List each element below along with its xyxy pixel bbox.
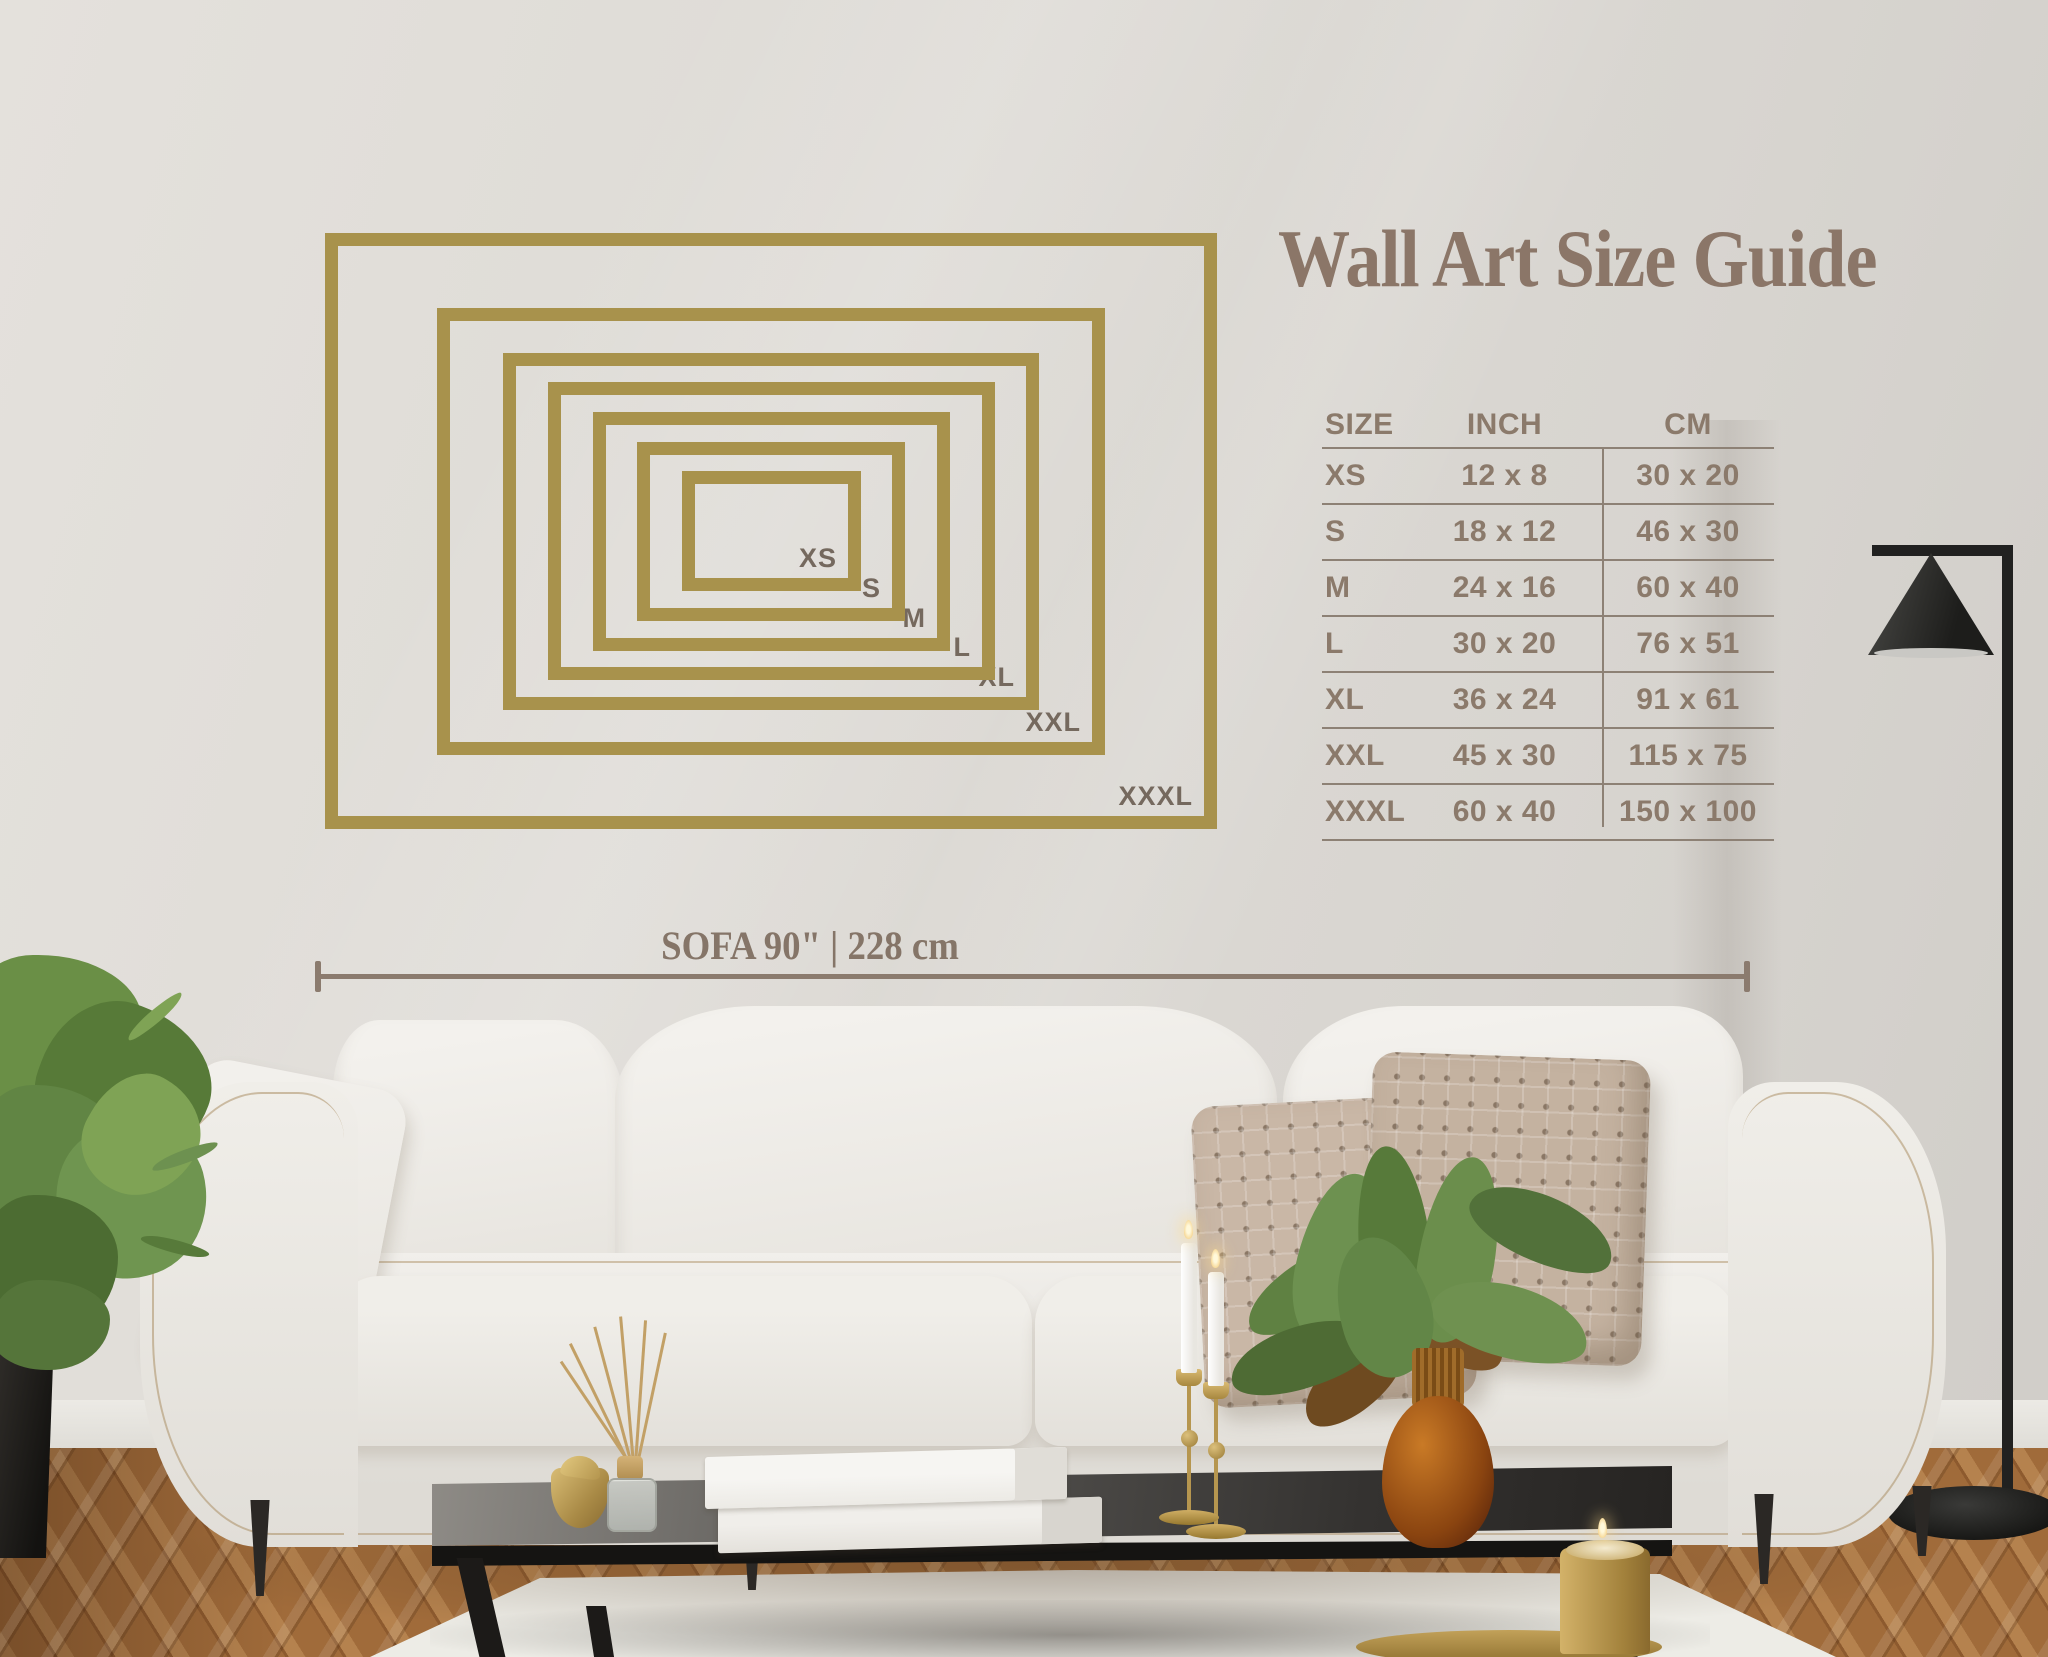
taper-candle	[1208, 1272, 1224, 1386]
cm-cell: 46 x 30	[1602, 515, 1774, 549]
candlestick-stem	[1214, 1399, 1218, 1532]
reed-diffuser-bottle	[607, 1478, 657, 1532]
size-frame-xs: XS	[682, 471, 861, 591]
size-cell: XL	[1322, 683, 1407, 717]
scene: Wall Art Size Guide XXXL XXL XL L M S XS…	[0, 0, 2048, 1657]
page-title: Wall Art Size Guide	[1278, 212, 1877, 306]
table-row: S 18 x 12 46 x 30	[1322, 505, 1774, 561]
size-cell: XXL	[1322, 739, 1407, 773]
measurement-line	[318, 974, 1748, 979]
candlestick-orb	[1181, 1430, 1198, 1447]
size-cell: L	[1322, 627, 1407, 661]
inch-cell: 24 x 16	[1407, 571, 1602, 605]
cm-cell: 76 x 51	[1602, 627, 1774, 661]
inch-cell: 36 x 24	[1407, 683, 1602, 717]
lamp-shade-rim	[1874, 648, 1988, 658]
frame-label: S	[862, 573, 881, 604]
table-row: M 24 x 16 60 x 40	[1322, 561, 1774, 617]
taper-candle	[1181, 1243, 1197, 1373]
candle-flame	[1211, 1249, 1220, 1268]
size-cell: XS	[1322, 459, 1407, 493]
cm-cell: 60 x 40	[1602, 571, 1774, 605]
frame-label: XXXL	[1118, 781, 1193, 812]
measurement-end-tick	[1744, 961, 1750, 992]
lamp-pole	[2002, 545, 2013, 1520]
frame-label: XS	[799, 543, 837, 574]
inch-cell: 18 x 12	[1407, 515, 1602, 549]
cm-cell: 150 x 100	[1602, 795, 1774, 829]
table-row: XL 36 x 24 91 x 61	[1322, 673, 1774, 729]
inch-cell: 60 x 40	[1407, 795, 1602, 829]
candlestick-orb	[1208, 1442, 1225, 1459]
frame-label: XXL	[1025, 707, 1081, 738]
sofa-seat-cushion	[332, 1276, 1032, 1446]
candlestick-base	[1159, 1510, 1219, 1525]
cm-cell: 30 x 20	[1602, 459, 1774, 493]
sofa-arm-right	[1728, 1082, 1946, 1547]
cm-cell: 91 x 61	[1602, 683, 1774, 717]
sofa-measurement-label: SOFA 90" | 228 cm	[534, 922, 1086, 969]
inch-cell: 45 x 30	[1407, 739, 1602, 773]
size-table: SIZE INCH CM XS 12 x 8 30 x 20 S 18 x 12…	[1322, 402, 1774, 841]
header-size: SIZE	[1322, 408, 1407, 442]
header-cm: CM	[1602, 408, 1774, 442]
table-row: XXL 45 x 30 115 x 75	[1322, 729, 1774, 785]
book	[705, 1447, 1067, 1509]
frame-label: M	[903, 603, 927, 634]
size-cell: XXXL	[1322, 795, 1407, 829]
size-cell: S	[1322, 515, 1407, 549]
candlestick-stem	[1187, 1386, 1191, 1518]
frame-label: L	[954, 632, 972, 663]
lamp-arm	[1872, 545, 2013, 556]
table-header-row: SIZE INCH CM	[1322, 402, 1774, 449]
candle-flame	[1184, 1220, 1193, 1239]
table-row: XS 12 x 8 30 x 20	[1322, 449, 1774, 505]
inch-cell: 12 x 8	[1407, 459, 1602, 493]
table-column-divider	[1602, 447, 1604, 827]
diffuser-cap	[617, 1456, 643, 1480]
header-inch: INCH	[1407, 408, 1602, 442]
size-cell: M	[1322, 571, 1407, 605]
gold-pillar-candle	[1560, 1548, 1650, 1654]
table-row: XXXL 60 x 40 150 x 100	[1322, 785, 1774, 841]
candlestick-base	[1186, 1524, 1246, 1539]
inch-cell: 30 x 20	[1407, 627, 1602, 661]
measurement-end-tick	[315, 961, 321, 992]
cm-cell: 115 x 75	[1602, 739, 1774, 773]
candle-flame	[1598, 1518, 1607, 1538]
table-row: L 30 x 20 76 x 51	[1322, 617, 1774, 673]
